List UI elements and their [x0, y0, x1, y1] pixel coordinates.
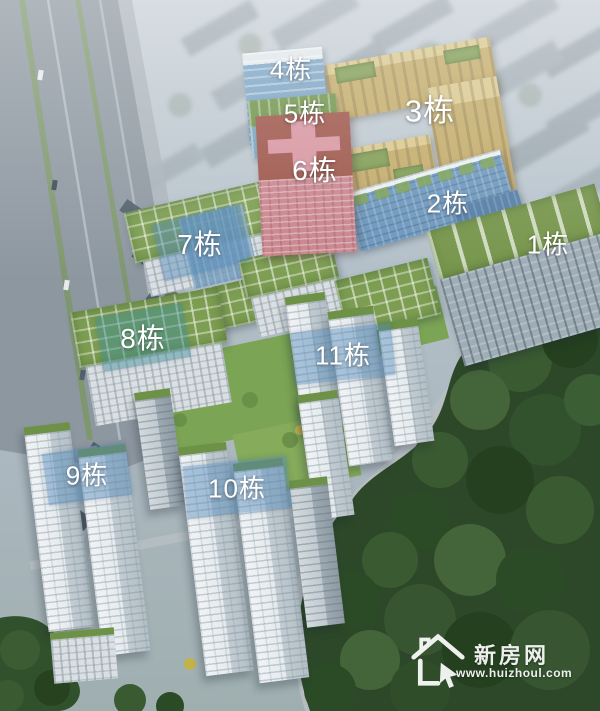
label-building-4: 4栋 — [270, 50, 312, 87]
label-building-1: 1栋 — [527, 225, 569, 262]
house-icon — [410, 628, 466, 692]
label-building-6: 6栋 — [292, 149, 338, 189]
label-building-7: 7栋 — [177, 223, 223, 263]
aerial-site-rendering: 1栋 2栋 3栋 4栋 5栋 6栋 7栋 8栋 9栋 10栋 11栋 新房网 w… — [0, 0, 600, 711]
watermark-site-url: www.huizhoul.com — [456, 666, 572, 680]
label-building-2: 2栋 — [427, 184, 469, 221]
label-building-5: 5栋 — [284, 94, 326, 131]
label-building-3: 3栋 — [405, 86, 455, 131]
label-building-9: 9栋 — [66, 456, 108, 493]
label-building-10: 10栋 — [208, 469, 266, 506]
label-building-11: 11栋 — [315, 336, 371, 373]
lowrise-block — [50, 627, 118, 683]
watermark: 新房网 www.huizhoul.com — [410, 626, 595, 696]
label-building-8: 8栋 — [120, 317, 166, 357]
